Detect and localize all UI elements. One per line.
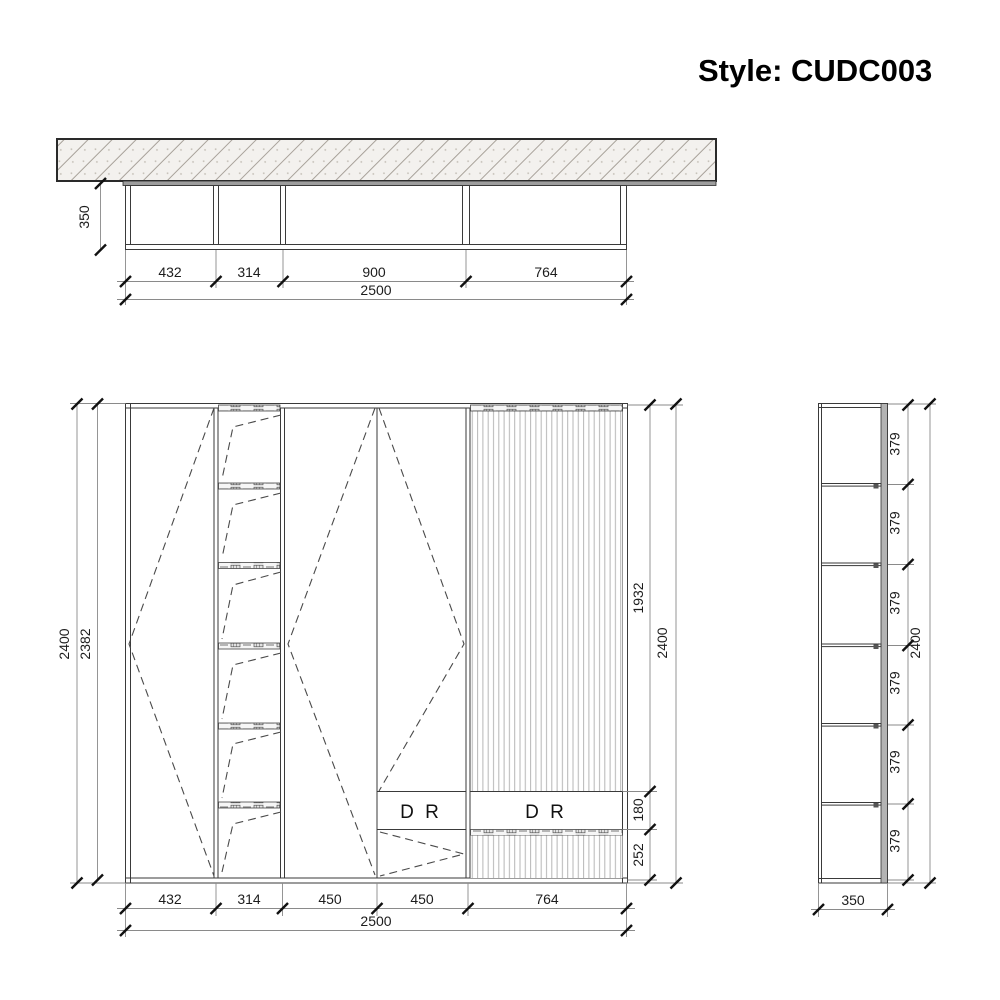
front-dim-252: 252 — [630, 843, 646, 867]
ceiling-hatch — [57, 139, 716, 181]
plan-view: 350 432 314 900 764 2500 — [57, 139, 716, 305]
side-elevation: 379 379 379 379 379 379 2400 350 — [811, 399, 936, 918]
front-dim-w2: 314 — [237, 891, 261, 907]
plan-depth-dimension: 350 — [76, 178, 106, 256]
cabinet-plan-outline — [126, 186, 627, 250]
front-right-dimensions: 1932 180 252 2400 — [623, 399, 684, 889]
plan-dim-4: 764 — [534, 264, 558, 280]
side-depth-label: 350 — [841, 892, 865, 908]
front-dim-w4: 450 — [410, 891, 434, 907]
front-dim-1932: 1932 — [630, 582, 646, 613]
plan-dim-3: 900 — [362, 264, 386, 280]
front-bottom-dimensions: 432 314 450 450 764 2500 — [117, 883, 635, 937]
side-cell-5: 379 — [887, 750, 903, 774]
drawer-label-middle: D R — [400, 802, 442, 823]
side-cell-4: 379 — [887, 671, 903, 695]
front-right-total-label: 2400 — [654, 627, 670, 658]
front-left-dimensions: 2400 2382 — [56, 399, 126, 889]
side-cell-1: 379 — [887, 432, 903, 456]
front-dim-180: 180 — [630, 798, 646, 822]
plan-depth-label: 350 — [76, 205, 92, 229]
drawing-sheet: Style: CUDC003 350 432 314 900 — [0, 0, 1000, 1000]
front-height-inner-label: 2382 — [77, 628, 93, 659]
front-dim-w3: 450 — [318, 891, 342, 907]
bottom-drawer-front — [471, 836, 623, 879]
drawer-label-right: D R — [525, 802, 567, 823]
technical-drawing: Style: CUDC003 350 432 314 900 — [0, 0, 1000, 1000]
style-title: Style: CUDC003 — [698, 53, 932, 88]
plan-segment-dimensions: 432 314 900 764 2500 — [117, 250, 634, 305]
side-bottom-dimension: 350 — [811, 883, 895, 917]
side-cell-6: 379 — [887, 829, 903, 853]
side-right-dimensions: 379 379 379 379 379 379 2400 — [887, 399, 937, 889]
plan-dim-2: 314 — [237, 264, 261, 280]
louver-door — [471, 411, 623, 792]
back-panel — [881, 404, 888, 884]
front-dim-w1: 432 — [158, 891, 182, 907]
front-total-width-label: 2500 — [360, 913, 391, 929]
cabinet-side-outline — [819, 404, 888, 884]
plan-total-label: 2500 — [360, 282, 391, 298]
wall-edge-strip — [123, 181, 716, 186]
side-cell-3: 379 — [887, 591, 903, 615]
front-dim-w5: 764 — [535, 891, 559, 907]
plan-dim-1: 432 — [158, 264, 182, 280]
side-total-height-label: 2400 — [907, 627, 923, 658]
side-cell-2: 379 — [887, 511, 903, 535]
front-height-total-label: 2400 — [56, 628, 72, 659]
front-elevation: D R D R 2400 2382 — [56, 399, 683, 938]
